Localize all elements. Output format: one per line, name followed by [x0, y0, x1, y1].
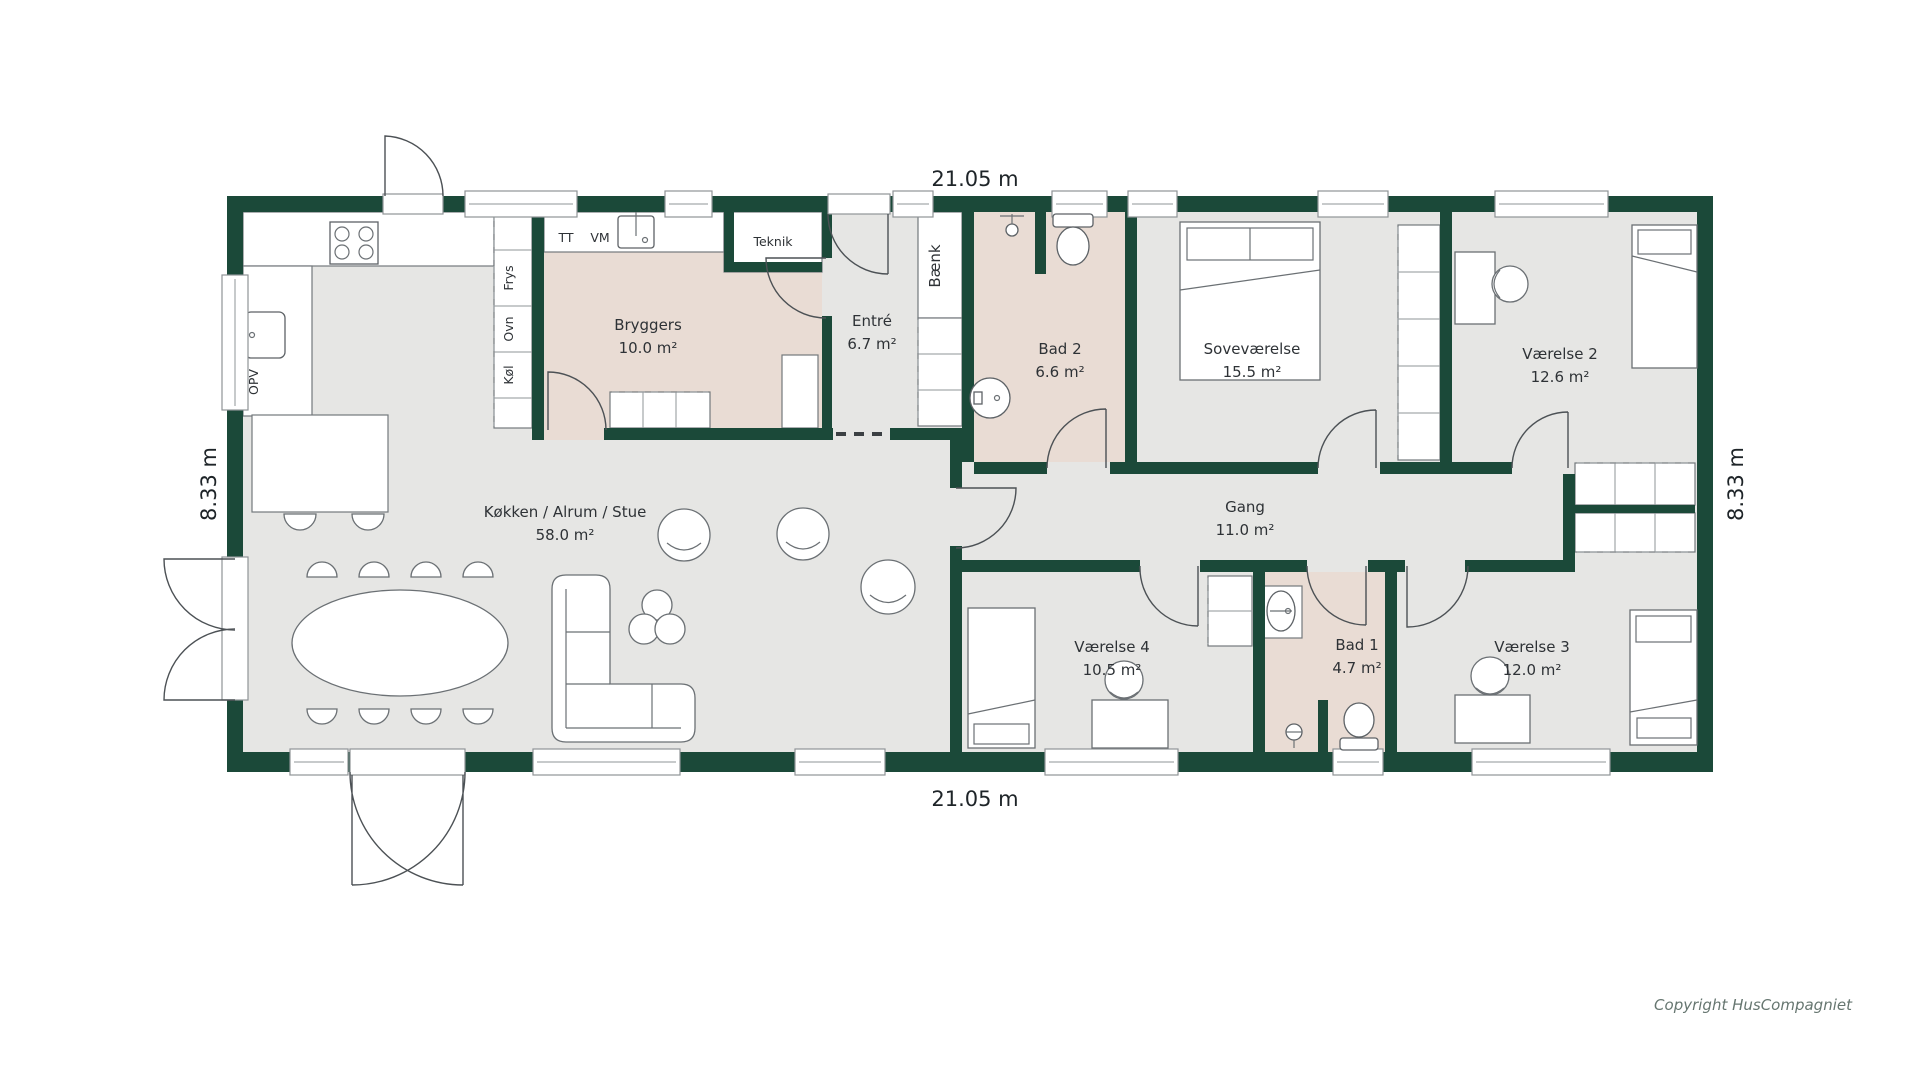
armchair	[861, 560, 915, 614]
window	[1128, 191, 1177, 217]
wall	[1385, 572, 1397, 752]
label-tt: TT	[557, 230, 573, 245]
bed-vaerelse3	[1630, 610, 1697, 745]
window	[290, 749, 348, 775]
window	[1495, 191, 1608, 217]
label-teknik: Teknik	[752, 234, 793, 249]
wall	[950, 546, 962, 752]
wardrobe-sovevaerelse	[1398, 225, 1440, 460]
label-bad1-area: 4.7 m²	[1332, 659, 1381, 677]
window	[665, 191, 712, 217]
label-vaerelse2-name: Værelse 2	[1522, 345, 1598, 363]
label-baenk: Bænk	[926, 244, 944, 288]
label-bad2-name: Bad 2	[1038, 340, 1081, 358]
desk-vaerelse2	[1455, 252, 1495, 324]
wall	[1125, 212, 1137, 462]
label-vaerelse3-name: Værelse 3	[1494, 638, 1570, 656]
wall	[1110, 462, 1318, 474]
desk-vaerelse3	[1455, 695, 1530, 743]
window	[1472, 749, 1610, 775]
wall	[604, 428, 833, 440]
wall	[822, 212, 832, 258]
label-gang-area: 11.0 m²	[1216, 521, 1275, 539]
label-entre-name: Entré	[852, 312, 892, 330]
window	[465, 191, 577, 217]
desk-chair-vaerelse2	[1492, 266, 1528, 302]
window	[1045, 749, 1178, 775]
label-vaerelse2-area: 12.6 m²	[1531, 368, 1590, 386]
wall	[1253, 572, 1265, 752]
dimension-top: 21.05 m	[931, 167, 1018, 191]
wall	[1380, 462, 1512, 474]
dimension-right: 8.33 m	[1724, 447, 1748, 521]
window	[893, 191, 933, 217]
label-ovn: Ovn	[501, 316, 516, 341]
wall	[822, 316, 832, 440]
label-vaerelse4-name: Værelse 4	[1074, 638, 1150, 656]
label-bad1-name: Bad 1	[1335, 636, 1378, 654]
label-opv: OPV	[246, 369, 261, 395]
wall	[532, 212, 544, 440]
entry-bench-baenk	[918, 212, 962, 426]
bryggers-tall-cabinet	[782, 355, 818, 428]
bed-vaerelse2	[1632, 225, 1697, 368]
wall	[974, 462, 1047, 474]
bryggers-cabinets	[610, 392, 710, 428]
wall-exterior-right	[1697, 196, 1713, 772]
label-bryggers-name: Bryggers	[614, 316, 682, 334]
wall	[1440, 212, 1452, 462]
floor-plan: Bryggers 10.0 m² Entré 6.7 m² Bad 2 6.6 …	[0, 0, 1920, 1080]
wall	[724, 262, 822, 272]
window	[1333, 749, 1383, 775]
label-vaerelse4-area: 10.5 m²	[1083, 661, 1142, 679]
armchair	[658, 509, 710, 561]
wall	[962, 212, 974, 462]
wall	[1368, 560, 1405, 572]
dimension-left: 8.33 m	[197, 447, 221, 521]
label-sovevaerelse-area: 15.5 m²	[1223, 363, 1282, 381]
wardrobe-vaerelse3	[1575, 513, 1695, 552]
garden-doors-bottom	[350, 749, 465, 885]
armchair	[777, 508, 829, 560]
window	[795, 749, 885, 775]
label-frys: Frys	[501, 265, 516, 290]
sink-bad2	[970, 378, 1010, 418]
window	[222, 275, 248, 410]
dishwasher-opv	[245, 312, 285, 358]
copyright-text: Copyright HusCompagniet	[1654, 996, 1853, 1014]
wall-exterior-top	[227, 196, 1713, 212]
wall	[1465, 560, 1575, 572]
desk-vaerelse4	[1092, 700, 1168, 748]
label-entre-area: 6.7 m²	[847, 335, 896, 353]
label-vaerelse3-area: 12.0 m²	[1503, 661, 1562, 679]
wall-bad1-stub	[1318, 700, 1328, 752]
label-bad2-area: 6.6 m²	[1035, 363, 1084, 381]
floor-bad2	[974, 212, 1125, 462]
label-koel: Køl	[501, 365, 516, 384]
wall	[950, 428, 962, 488]
label-gang-name: Gang	[1225, 498, 1265, 516]
bed-vaerelse4	[968, 608, 1035, 748]
wall	[1200, 560, 1307, 572]
exterior-door-kitchen	[383, 136, 443, 214]
window	[533, 749, 680, 775]
label-sovevaerelse-name: Soveværelse	[1204, 340, 1301, 358]
window	[1052, 191, 1107, 217]
wall-shower-stub	[1035, 212, 1046, 274]
label-vm: VM	[590, 230, 609, 245]
wall	[1563, 474, 1575, 572]
terrace-doors-left	[164, 557, 248, 700]
sink-bad1	[1267, 591, 1295, 631]
wall	[1573, 505, 1695, 513]
wall	[962, 560, 1140, 572]
dimension-bottom: 21.05 m	[931, 787, 1018, 811]
window	[1318, 191, 1388, 217]
wardrobe-vaerelse2	[1575, 463, 1695, 505]
label-stue-area: 58.0 m²	[536, 526, 595, 544]
label-bryggers-area: 10.0 m²	[619, 339, 678, 357]
label-stue-name: Køkken / Alrum / Stue	[484, 503, 647, 521]
stove	[330, 222, 378, 264]
wardrobe-vaerelse4	[1208, 576, 1252, 646]
kitchen-island	[252, 415, 388, 512]
